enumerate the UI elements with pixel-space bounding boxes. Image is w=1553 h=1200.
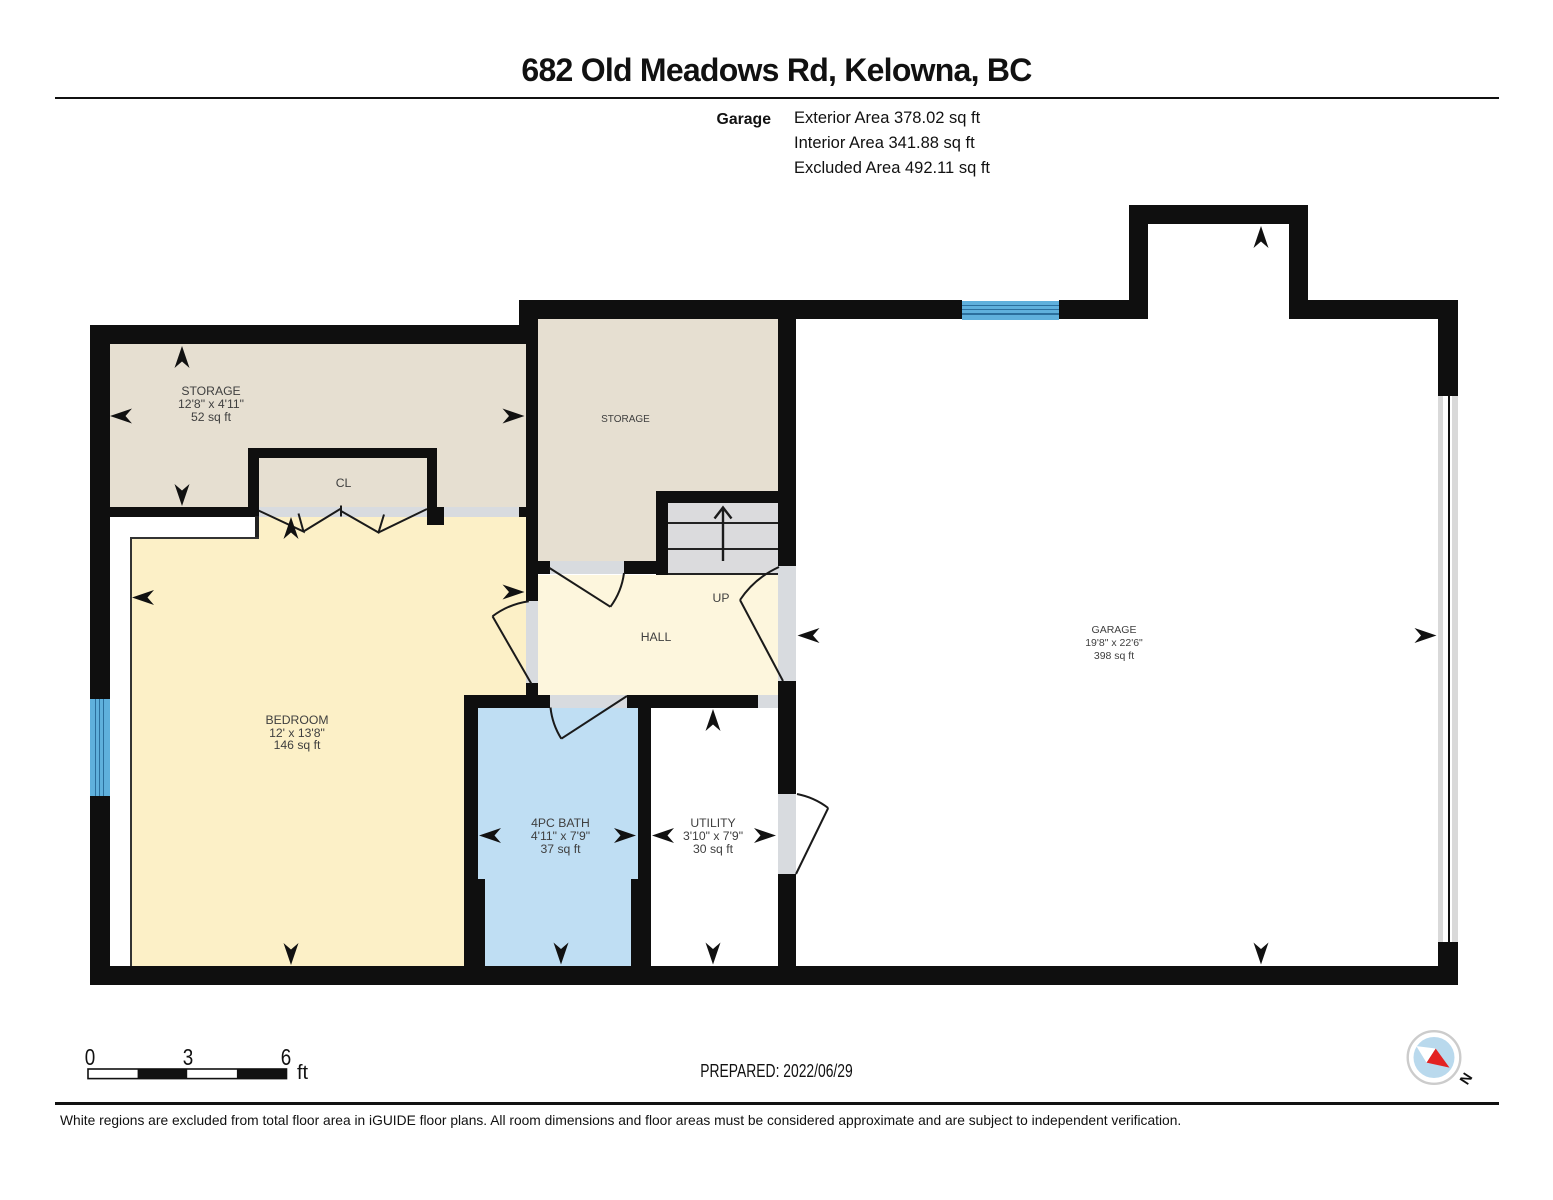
svg-text:N: N bbox=[1456, 1069, 1475, 1087]
